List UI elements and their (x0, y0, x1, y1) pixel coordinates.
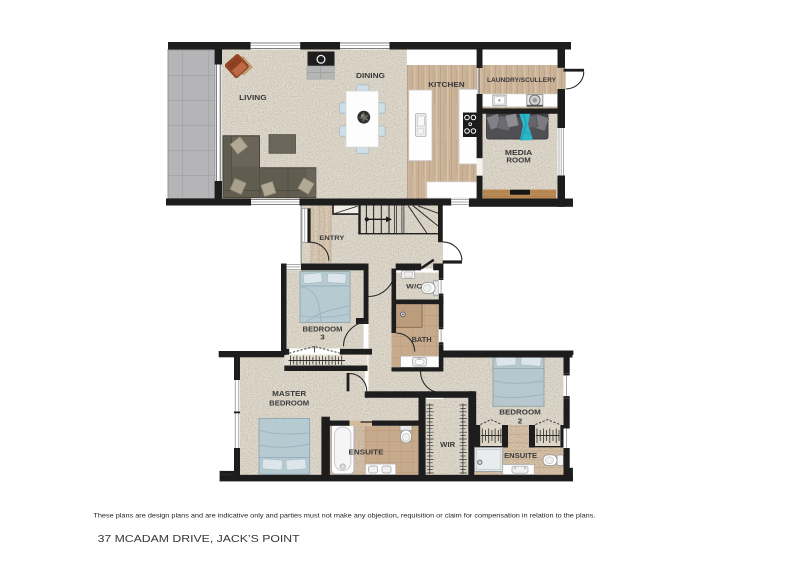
svg-text:ROOM: ROOM (506, 158, 531, 165)
svg-text:These plans are design plans a: These plans are design plans and are ind… (93, 512, 595, 519)
svg-text:BATH: BATH (412, 337, 432, 344)
svg-text:KITCHEN: KITCHEN (428, 82, 465, 89)
svg-text:ENSUITE: ENSUITE (349, 449, 384, 456)
svg-text:LAUNDRY/SCULLERY: LAUNDRY/SCULLERY (487, 77, 557, 84)
svg-text:37 MCADAM DRIVE, JACK’S POINT: 37 MCADAM DRIVE, JACK’S POINT (98, 534, 300, 545)
svg-text:BEDROOM: BEDROOM (303, 327, 343, 334)
svg-text:LIVING: LIVING (239, 95, 267, 102)
svg-text:BEDROOM: BEDROOM (499, 409, 541, 416)
svg-text:MEDIA: MEDIA (505, 150, 533, 157)
svg-text:ENSUITE: ENSUITE (504, 453, 537, 460)
svg-text:MASTER: MASTER (272, 391, 306, 398)
svg-text:DINING: DINING (356, 73, 386, 80)
svg-text:2: 2 (518, 418, 523, 425)
svg-text:3: 3 (320, 335, 325, 342)
svg-text:WIR: WIR (440, 442, 455, 449)
svg-text:BEDROOM: BEDROOM (269, 401, 309, 408)
svg-text:ENTRY: ENTRY (319, 235, 345, 242)
svg-text:W/C: W/C (406, 284, 422, 291)
